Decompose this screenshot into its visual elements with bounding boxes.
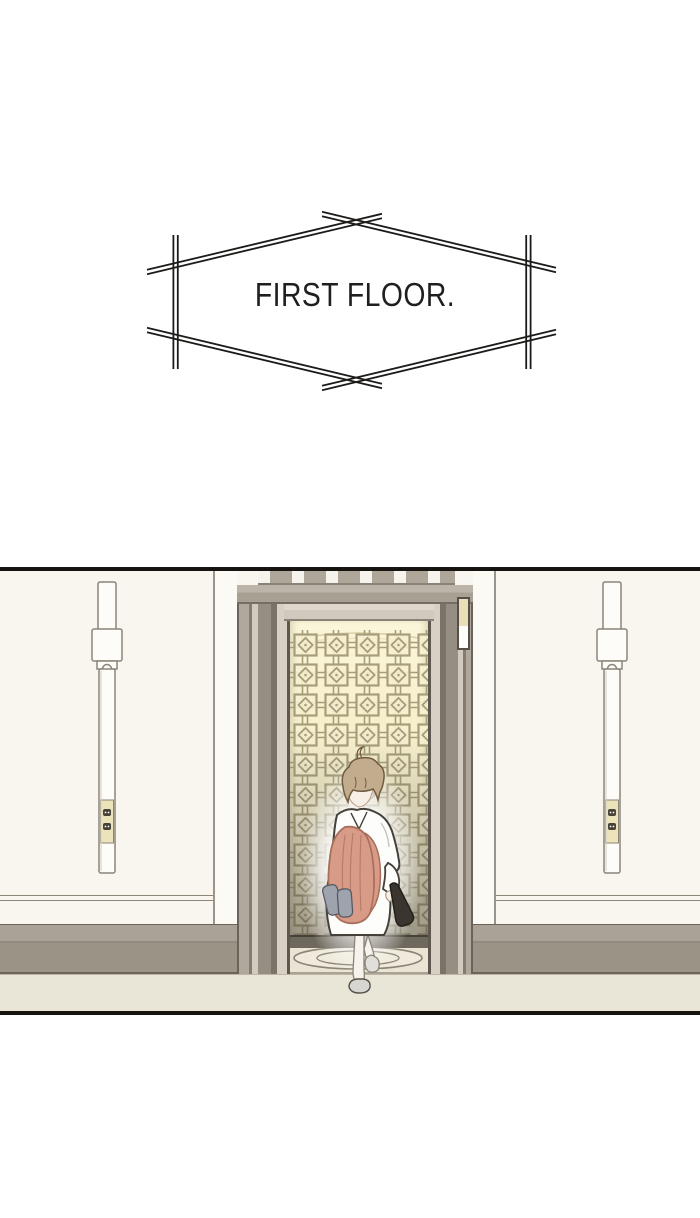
wall-sconce-right: [592, 581, 632, 881]
elevator-header-beam: [237, 585, 473, 604]
scene-panel: [0, 567, 700, 1015]
caption-frame: [0, 0, 700, 440]
elevator-indicator-panel: [457, 597, 470, 650]
character: [285, 735, 435, 1005]
wall-corner-line-right: [494, 571, 496, 924]
elevator-head-jamb: [284, 604, 434, 621]
character-back-shoe: [365, 955, 379, 972]
alcove-wall-left: [215, 571, 237, 924]
elevator-transom-grille: [258, 571, 455, 585]
baseboard-left: [0, 924, 243, 974]
caption-text: FIRST FLOOR.: [248, 276, 463, 314]
character-clutch: [390, 883, 414, 926]
character-front-leg: [353, 935, 364, 983]
baseboard-right: [467, 924, 700, 974]
wall-corner-line-left: [213, 571, 215, 924]
character-front-shoe: [349, 979, 370, 993]
webtoon-page: FIRST FLOOR.: [0, 0, 700, 1218]
character-hair-ahoge: [357, 747, 363, 759]
wall-sconce-left: [87, 581, 127, 881]
wall-panel-line-left: [0, 895, 213, 901]
wall-panel-line-right: [496, 895, 700, 901]
alcove-wall-right: [473, 571, 494, 924]
